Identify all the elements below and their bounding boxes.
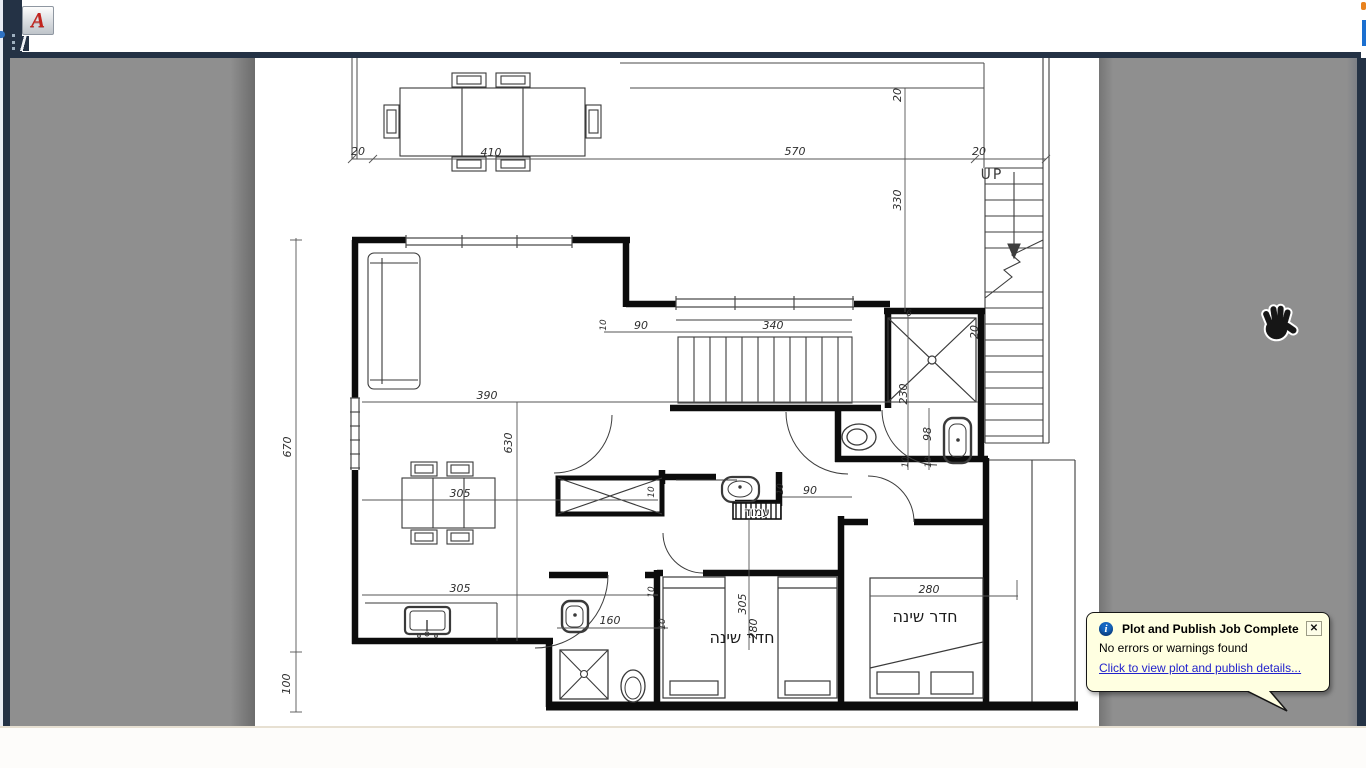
paperspace-background-left: [10, 58, 255, 726]
layout-paper[interactable]: [255, 58, 1099, 726]
notification-message: No errors or warnings found: [1099, 641, 1319, 655]
window-left-edge: [0, 0, 3, 726]
edge-scrollbar-thumb[interactable]: [1362, 20, 1366, 46]
right-edge-strip: [1361, 0, 1366, 58]
partial-toolbar-icon: [18, 36, 29, 51]
notification-balloon-tail: [1241, 690, 1293, 713]
notification-close-button[interactable]: ✕: [1306, 621, 1322, 636]
command-area[interactable]: [0, 726, 1366, 768]
autocad-app-icon[interactable]: A: [22, 6, 54, 35]
drawing-area-top-border: [0, 52, 1361, 58]
title-bar: A: [0, 0, 1366, 52]
notification-title: Plot and Publish Job Complete: [1122, 622, 1299, 636]
autocad-logo-letter: A: [31, 10, 45, 31]
edge-orange-marker-icon: [1361, 2, 1366, 10]
info-icon: i: [1099, 622, 1113, 636]
plot-publish-notification[interactable]: i Plot and Publish Job Complete ✕ No err…: [1086, 612, 1330, 692]
notification-details-link[interactable]: Click to view plot and publish details..…: [1099, 661, 1301, 675]
notification-title-row: i Plot and Publish Job Complete: [1099, 622, 1319, 636]
toolbar-grip-handle[interactable]: [12, 34, 15, 50]
